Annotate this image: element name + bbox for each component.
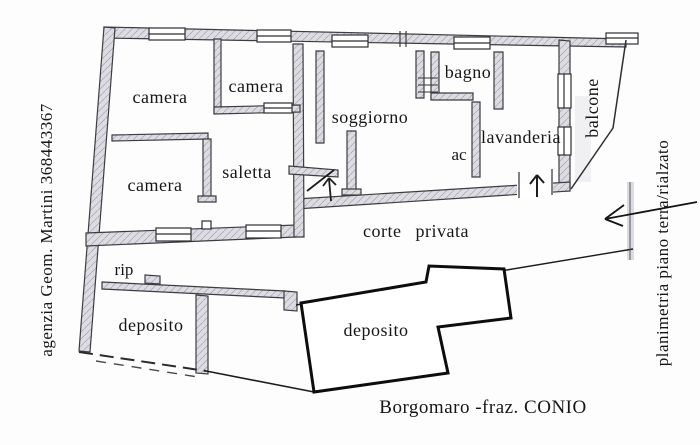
- floor-plan-page: camera camera bagno soggiorno lavanderia…: [0, 0, 700, 445]
- wall-camera3-right: [203, 139, 211, 199]
- wall-stub-endcap: [342, 189, 361, 195]
- wall-central-vertical: [293, 44, 304, 237]
- room-label-camera-2: camera: [229, 76, 284, 96]
- room-label-deposito-2: deposito: [344, 320, 409, 340]
- window-icon: [156, 228, 191, 241]
- wall-left: [79, 27, 115, 352]
- room-label-lavanderia: lavanderia: [481, 127, 561, 147]
- wall-rip-endcap: [284, 291, 297, 311]
- area-label-corte-privata: corte privata: [363, 221, 469, 241]
- wall-camera1-bottom: [112, 133, 208, 141]
- wall-right: [559, 40, 570, 191]
- window-icon: [246, 225, 281, 238]
- window-icon: [606, 33, 638, 44]
- window-icon: [332, 35, 368, 47]
- plan-type-annotation: planimetria piano terra/rialzato: [653, 140, 672, 367]
- wall-niche-mark: [202, 221, 211, 229]
- wall-bagno-right: [494, 52, 503, 109]
- room-label-soggiorno: soggiorno: [332, 107, 409, 127]
- wall-soggiorno-left: [316, 51, 324, 143]
- window-icon: [264, 103, 292, 113]
- floor-plan-drawing: camera camera bagno soggiorno lavanderia…: [0, 0, 700, 445]
- wall-soggiorno-stub: [347, 131, 356, 192]
- agency-annotation: agenzia Geom. Martini 368443367: [37, 103, 56, 356]
- wall-camera3-endcap: [198, 196, 216, 202]
- wall-bagno-bottom: [431, 93, 473, 100]
- room-label-balcone: balcone: [582, 78, 602, 137]
- room-label-deposito-1: deposito: [119, 315, 184, 335]
- wall-rip-bottom: [102, 282, 285, 298]
- room-label-camera-3: camera: [128, 175, 183, 195]
- room-label-rip: rip: [115, 260, 134, 279]
- room-label-bagno: bagno: [445, 62, 492, 82]
- room-label-camera-1: camera: [133, 87, 188, 107]
- wall-camera-divider: [214, 39, 221, 113]
- window-icon: [149, 28, 185, 40]
- dashed-boundary-line: [96, 361, 198, 377]
- direction-arrow-icon: [605, 202, 697, 226]
- wall-deposito-right: [196, 295, 208, 374]
- lavanderia-door: [517, 169, 553, 198]
- wall-lavanderia-left: [472, 102, 480, 177]
- window-icon: [257, 30, 291, 42]
- window-icon: [454, 37, 490, 49]
- room-label-saletta: saletta: [222, 162, 271, 182]
- room-label-ac: ac: [451, 145, 467, 164]
- door-gap: [517, 181, 553, 197]
- window-icon: [558, 74, 571, 108]
- location-caption: Borgomaro -fraz. CONIO: [379, 397, 586, 418]
- wall-soggiorno-right: [416, 51, 424, 98]
- wall-rip-notch: [145, 275, 160, 284]
- boundary-line: [206, 371, 314, 392]
